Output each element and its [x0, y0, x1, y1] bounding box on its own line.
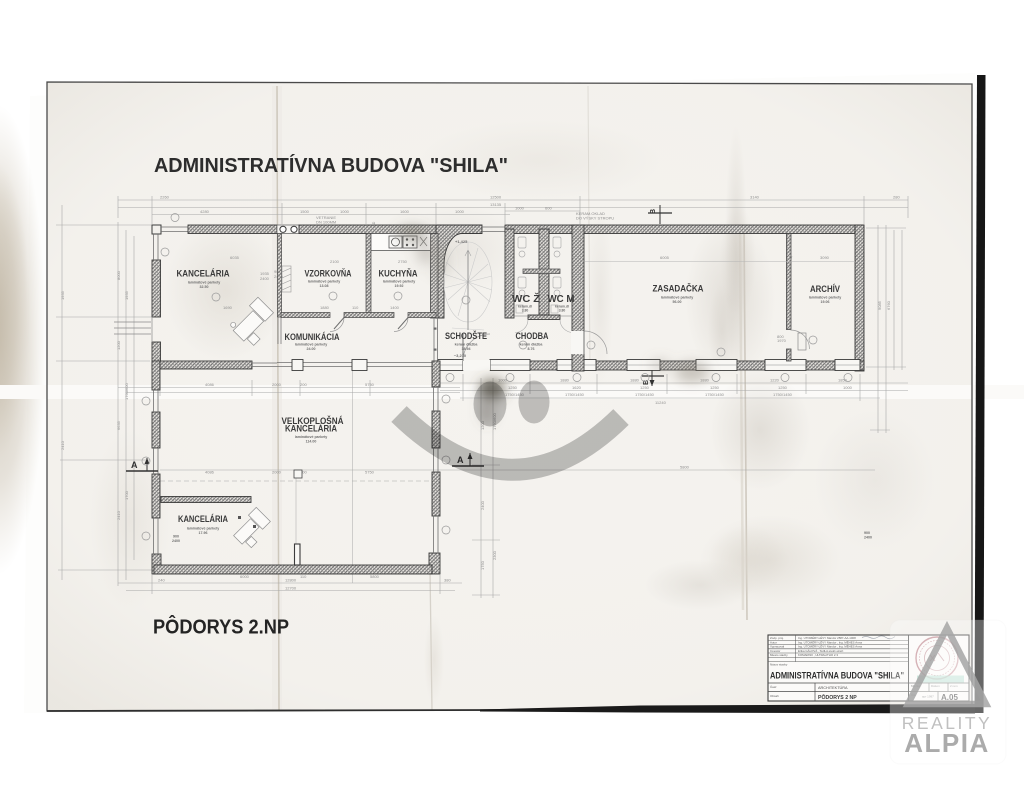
svg-text:4086: 4086: [205, 470, 215, 475]
svg-text:Erika GÁLOVÁ , SHILA etek1 eks: Erika GÁLOVÁ , SHILA etek1 ekszt: [798, 649, 844, 653]
svg-text:114.00: 114.00: [306, 440, 317, 444]
svg-text:5800: 5800: [370, 574, 380, 579]
svg-text:1880: 1880: [320, 305, 330, 310]
svg-text:B: B: [650, 209, 657, 214]
svg-text:laminátové parkety: laminátové parkety: [187, 527, 220, 531]
svg-text:keram dlažba: keram dlažba: [520, 343, 544, 347]
svg-text:2000: 2000: [272, 382, 282, 387]
svg-text:17.96: 17.96: [199, 531, 208, 535]
svg-text:B: B: [643, 380, 650, 385]
svg-text:laminátové parkety: laminátové parkety: [308, 280, 341, 284]
svg-text:1935: 1935: [124, 290, 129, 300]
svg-text:Obsah: Obsah: [770, 694, 779, 698]
svg-text:1250: 1250: [710, 385, 720, 390]
svg-text:2300: 2300: [492, 550, 497, 560]
svg-text:6760: 6760: [886, 300, 891, 310]
svg-text:1700: 1700: [124, 490, 129, 500]
svg-text:ALPIA: ALPIA: [904, 728, 990, 758]
svg-text:DN 100MM: DN 100MM: [316, 220, 336, 225]
svg-text:laminátové parkety: laminátové parkety: [188, 281, 221, 285]
svg-text:1880: 1880: [630, 378, 640, 383]
svg-text:1220: 1220: [770, 378, 780, 383]
svg-text:900: 900: [173, 535, 179, 539]
svg-text:Zodp. proj.: Zodp. proj.: [770, 636, 784, 640]
svg-text:5750: 5750: [365, 382, 375, 387]
svg-text:9085: 9085: [877, 300, 882, 310]
svg-text:8000: 8000: [116, 270, 121, 280]
svg-text:11240: 11240: [655, 400, 667, 405]
svg-text:2400: 2400: [172, 539, 180, 543]
svg-text:−3,210: −3,210: [454, 353, 467, 358]
svg-text:1250: 1250: [778, 385, 788, 390]
svg-text:4086: 4086: [205, 382, 215, 387]
svg-text:Miesto stavby: Miesto stavby: [770, 653, 788, 657]
svg-text:WC M: WC M: [548, 294, 575, 305]
svg-text:32.50: 32.50: [200, 285, 209, 289]
svg-text:ADMINISTRATÍVNA BUDOVA "SHILA": ADMINISTRATÍVNA BUDOVA "SHILA": [154, 154, 508, 177]
svg-text:laminátové parkety: laminátové parkety: [383, 280, 416, 284]
svg-text:3.80: 3.80: [522, 309, 529, 313]
svg-text:1750: 1750: [480, 560, 485, 570]
svg-text:keram dlažba: keram dlažba: [455, 343, 479, 347]
svg-text:1750/1450: 1750/1450: [773, 392, 793, 397]
svg-text:280: 280: [893, 195, 900, 200]
svg-text:19.92: 19.92: [395, 284, 404, 288]
svg-text:ARCHÍV: ARCHÍV: [810, 284, 841, 294]
svg-text:2400: 2400: [864, 536, 872, 540]
svg-text:3090: 3090: [820, 255, 830, 260]
svg-text:1000: 1000: [455, 209, 465, 214]
svg-text:2400: 2400: [480, 500, 485, 510]
svg-text:600: 600: [545, 206, 552, 211]
svg-text:ARCHITEKTÚRA: ARCHITEKTÚRA: [818, 685, 848, 690]
svg-text:1000: 1000: [340, 209, 350, 214]
svg-text:24.00: 24.00: [307, 347, 316, 351]
svg-text:1620: 1620: [572, 385, 582, 390]
svg-text:CHODBA: CHODBA: [516, 331, 549, 341]
svg-text:1400: 1400: [390, 305, 400, 310]
svg-text:19.06: 19.06: [821, 300, 830, 304]
svg-text:2410: 2410: [60, 440, 65, 450]
svg-text:+1,425: +1,425: [455, 239, 468, 244]
svg-text:2750: 2750: [398, 259, 408, 264]
svg-text:1850: 1850: [838, 378, 848, 383]
svg-text:2000: 2000: [272, 470, 282, 475]
svg-text:6005: 6005: [660, 255, 670, 260]
svg-text:12700: 12700: [285, 586, 297, 591]
svg-text:3.80: 3.80: [559, 309, 566, 313]
svg-text:A: A: [131, 460, 138, 470]
svg-text:laminátové parkety: laminátové parkety: [809, 296, 842, 300]
svg-text:5800: 5800: [680, 465, 690, 470]
svg-text:1000: 1000: [515, 206, 525, 211]
svg-text:5750: 5750: [365, 470, 375, 475]
svg-text:2410: 2410: [116, 510, 121, 520]
svg-text:Názov stavby: Názov stavby: [770, 663, 788, 667]
svg-text:VZORKOVŇA: VZORKOVŇA: [305, 268, 352, 279]
svg-text:1600: 1600: [400, 209, 410, 214]
svg-text:1250: 1250: [508, 385, 518, 390]
svg-text:18.94: 18.94: [462, 347, 471, 351]
svg-text:6635: 6635: [116, 420, 121, 430]
svg-text:ZASADAČKA: ZASADAČKA: [653, 283, 704, 294]
svg-text:KOMARNO , ULTRALITHO 2.3: KOMARNO , ULTRALITHO 2.3: [798, 653, 838, 657]
svg-text:1000: 1000: [843, 385, 853, 390]
svg-text:KUCHYŇA: KUCHYŇA: [379, 268, 418, 279]
svg-text:laminátové parkety: laminátové parkety: [661, 296, 694, 300]
svg-text:PÔDORYS 2 NP: PÔDORYS 2 NP: [818, 693, 857, 701]
svg-text:3140: 3140: [750, 195, 760, 200]
svg-text:6000: 6000: [240, 574, 250, 579]
svg-text:110: 110: [352, 305, 359, 310]
svg-text:6035: 6035: [230, 255, 240, 260]
svg-text:1690: 1690: [223, 305, 233, 310]
svg-text:Investor: Investor: [770, 649, 780, 653]
svg-text:4280: 4280: [200, 209, 210, 214]
svg-text:1500: 1500: [300, 209, 310, 214]
svg-text:KOMUNIKÁCIA: KOMUNIKÁCIA: [285, 332, 340, 342]
svg-text:12800: 12800: [285, 578, 297, 583]
svg-text:12500: 12500: [490, 195, 502, 200]
svg-text:1750/1450: 1750/1450: [635, 392, 655, 397]
svg-text:380: 380: [444, 578, 451, 583]
svg-text:laminátové parkety: laminátové parkety: [295, 435, 328, 439]
svg-text:1970: 1970: [777, 338, 787, 343]
svg-text:56.00: 56.00: [673, 300, 682, 304]
svg-text:240: 240: [158, 578, 165, 583]
svg-text:1750/1450: 1750/1450: [705, 392, 725, 397]
svg-text:13135: 13135: [490, 202, 502, 207]
svg-text:1880: 1880: [560, 378, 570, 383]
svg-text:1750/1450: 1750/1450: [565, 392, 585, 397]
svg-text:2260: 2260: [160, 195, 170, 200]
svg-text:110: 110: [300, 574, 307, 579]
svg-text:PÔDORYS 2.NP: PÔDORYS 2.NP: [153, 615, 289, 639]
svg-text:900: 900: [864, 531, 870, 535]
svg-text:Časť: Časť: [770, 684, 777, 689]
svg-text:1200: 1200: [116, 340, 121, 350]
svg-text:KANCELÁRIA: KANCELÁRIA: [178, 514, 228, 524]
svg-text:1760/600: 1760/600: [124, 383, 129, 400]
svg-text:SCHODŠTE: SCHODŠTE: [445, 330, 487, 341]
svg-text:KANCELÁRIA: KANCELÁRIA: [177, 269, 230, 279]
svg-text:2100: 2100: [330, 259, 340, 264]
svg-text:laminátové parkety: laminátové parkety: [295, 343, 328, 347]
svg-text:DO VÝSKY STROPU: DO VÝSKY STROPU: [576, 216, 614, 221]
svg-text:13.08: 13.08: [320, 284, 329, 288]
svg-text:1935: 1935: [60, 290, 65, 300]
svg-text:ADMINISTRATÍVNA BUDOVA "SHILA": ADMINISTRATÍVNA BUDOVA "SHILA": [770, 670, 904, 681]
svg-text:8.76: 8.76: [528, 347, 535, 351]
svg-text:2400: 2400: [260, 276, 270, 281]
svg-text:200: 200: [300, 382, 307, 387]
svg-text:WC Ž: WC Ž: [512, 292, 540, 305]
svg-text:KANCELÁRIA: KANCELÁRIA: [285, 424, 337, 434]
svg-text:Ing. UTOMÉRY-LÉVY Nándor 258: Ing. UTOMÉRY-LÉVY Nándor 2587-AA-1008: [798, 635, 856, 640]
